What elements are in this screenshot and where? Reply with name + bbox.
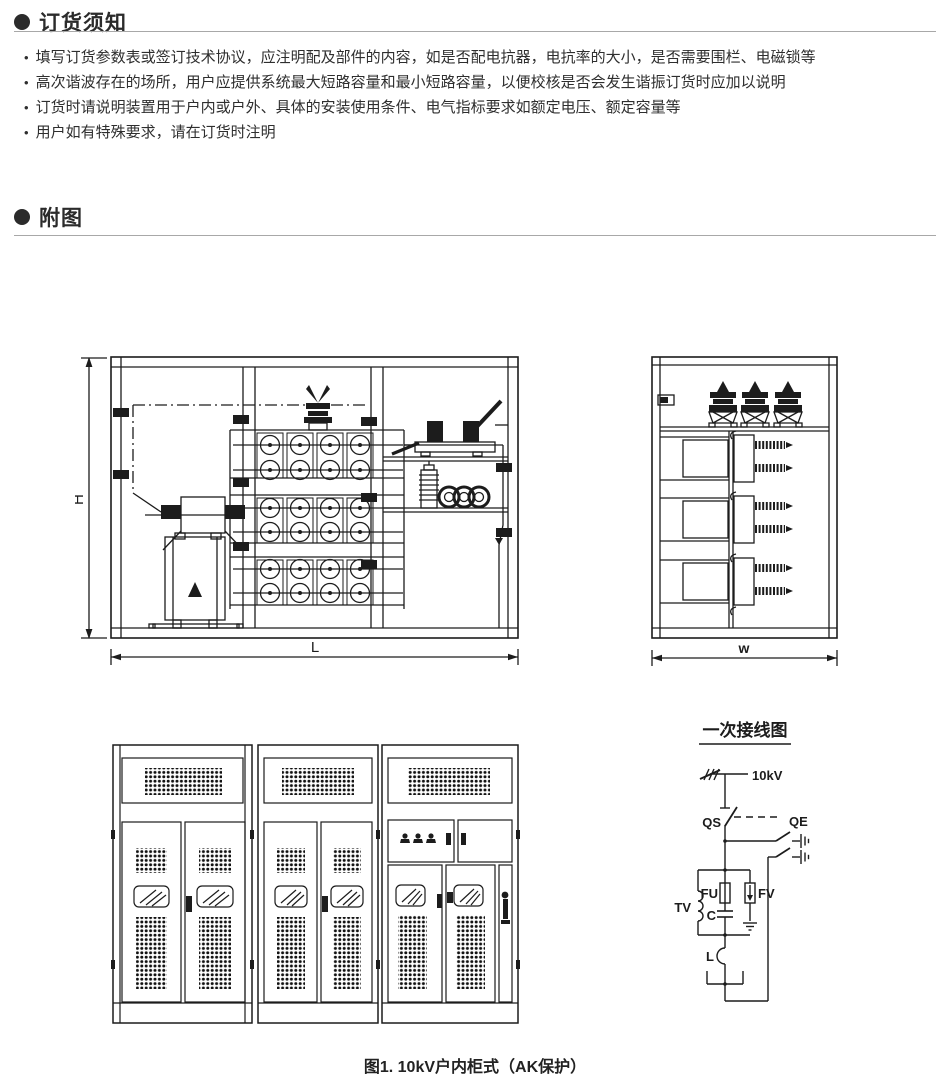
list-item: •订货时请说明装置用于户内或户外、具体的安装使用条件、电气指标要求如额定电压、额… [24, 95, 930, 120]
bullet-text: 高次谐波存在的场所，用户应提供系统最大短路容量和最小短路容量，以便校核是否会发生… [36, 74, 786, 91]
label-qe: QE [789, 814, 808, 829]
side-view-drawing: w [640, 345, 860, 675]
cabinet-section-2 [258, 745, 378, 1023]
bullet-marker: • [24, 125, 29, 140]
bullet-marker: • [24, 100, 29, 115]
document-page: 订货须知 •填写订货参数表或签订技术协议，应注明配及部件的内容，如是否配电抗器，… [0, 0, 950, 1088]
section-divider [14, 235, 936, 236]
internal-elevation-drawing: H [75, 345, 545, 675]
section-title: 订货须知 [39, 7, 127, 37]
section-bullet-icon [14, 14, 30, 30]
bullet-marker: • [24, 75, 29, 90]
capacitor-rack [230, 430, 404, 609]
bullet-text: 用户如有特殊要求，请在订货时注明 [36, 124, 276, 141]
bullet-marker: • [24, 50, 29, 65]
label-fu: FU [701, 886, 718, 901]
label-10kv: 10kV [752, 768, 783, 783]
cabinet-section-1 [113, 745, 252, 1023]
label-fv: FV [758, 886, 775, 901]
dim-label-l: L [311, 639, 319, 656]
label-tv: TV [674, 900, 691, 915]
list-item: •高次谐波存在的场所，用户应提供系统最大短路容量和最小短路容量，以便校核是否会发… [24, 70, 930, 95]
earthing-cable [404, 445, 503, 628]
post-insulator [304, 385, 332, 430]
reactor-symbol [707, 935, 768, 1001]
ordering-bullet-list: •填写订货参数表或签订技术协议，应注明配及部件的内容，如是否配电抗器，电抗率的大… [24, 45, 930, 145]
cabinet-front-view-drawing [100, 735, 540, 1055]
label-l: L [706, 949, 714, 964]
dim-label-h: H [75, 494, 87, 505]
tv-fu-c-fv-block [698, 868, 757, 937]
section-bullet-icon [14, 209, 30, 225]
earthing-switch-symbol [725, 832, 809, 1001]
list-item: •填写订货参数表或签订技术协议，应注明配及部件的内容，如是否配电抗器，电抗率的大… [24, 45, 930, 70]
bullet-text: 订货时请说明装置用于户内或户外、具体的安装使用条件、电气指标要求如额定电压、额定… [36, 99, 681, 116]
surge-arrester [419, 461, 439, 508]
figure-caption: 图1. 10kV户内柜式（AK保护） [0, 1053, 950, 1077]
wiring-diagram: 一次接线图 10kV QS QE [670, 705, 890, 1045]
label-qs: QS [702, 815, 721, 830]
section-title: 附图 [39, 202, 83, 232]
roof-insulators [709, 381, 802, 427]
door-lock-device [501, 892, 510, 924]
capacitor-tiers [660, 431, 793, 615]
section-header-figures: 附图 [14, 202, 83, 232]
wiring-diagram-title: 一次接线图 [703, 720, 788, 740]
list-item: •用户如有特殊要求，请在订货时注明 [24, 120, 930, 145]
label-c: C [707, 908, 717, 923]
indicator-lamps [400, 833, 466, 845]
dim-label-w: w [738, 640, 750, 656]
discharge-coil [133, 493, 245, 628]
section-divider [14, 31, 936, 32]
section-header-ordering: 订货须知 [14, 7, 127, 37]
current-transformers [439, 487, 489, 507]
cabinet-section-3 [382, 745, 518, 1023]
cabinet-frame [111, 357, 518, 638]
disconnector-switch [392, 401, 508, 456]
bullet-text: 填写订货参数表或签订技术协议，应注明配及部件的内容，如是否配电抗器，电抗率的大小… [36, 49, 816, 66]
